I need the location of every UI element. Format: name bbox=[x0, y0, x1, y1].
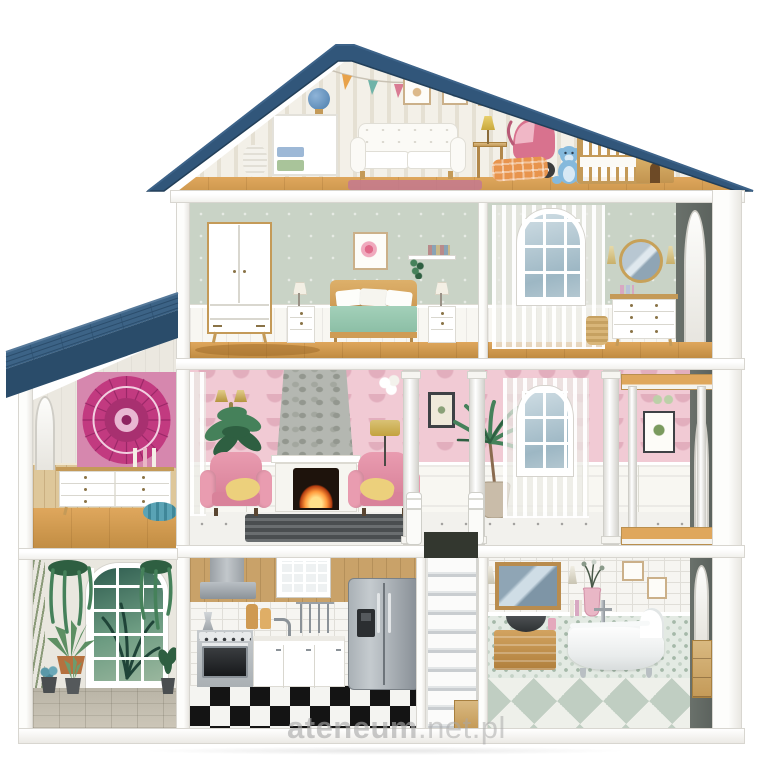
flower-picture bbox=[353, 232, 388, 270]
table-lamp bbox=[434, 282, 448, 308]
annex-floor-slab bbox=[18, 548, 178, 560]
kitchen-faucet bbox=[274, 618, 291, 636]
watermark-brand: ateneum bbox=[287, 710, 418, 745]
watermark-suffix: .net.pl bbox=[418, 710, 506, 745]
annex-left-wall bbox=[18, 360, 33, 728]
bathroom-mirror bbox=[495, 562, 561, 610]
annex-roof bbox=[0, 285, 200, 405]
elevator-sconce bbox=[652, 393, 674, 404]
kitchen-cabinets bbox=[253, 636, 345, 687]
bedroom bbox=[190, 203, 478, 358]
firebox bbox=[293, 468, 339, 510]
second-floor-slab bbox=[170, 358, 745, 370]
right-outer-wall bbox=[712, 190, 742, 730]
floor-lamp bbox=[369, 420, 401, 466]
clawfoot-bathtub bbox=[568, 608, 668, 682]
arched-doorway bbox=[694, 565, 709, 640]
candlesticks bbox=[131, 448, 159, 467]
elevator-platform bbox=[621, 527, 712, 545]
bathroom bbox=[488, 558, 712, 730]
attic-floor-slab bbox=[170, 190, 745, 203]
fire bbox=[297, 474, 335, 508]
elevator-shaft bbox=[621, 374, 712, 545]
bed bbox=[330, 280, 417, 342]
main-roof bbox=[130, 35, 760, 200]
conservatory-floor bbox=[33, 688, 176, 728]
hanging-utensils bbox=[296, 602, 334, 633]
teal-pouf bbox=[143, 502, 176, 521]
bathroom-picture bbox=[622, 561, 644, 581]
dressing-room bbox=[488, 203, 712, 358]
ice-dispenser bbox=[357, 609, 375, 637]
bedroom-divider-wall bbox=[478, 203, 488, 358]
stove-oven bbox=[197, 630, 253, 687]
small-drawer-unit bbox=[692, 640, 712, 698]
bathroom-floor bbox=[488, 678, 712, 730]
column bbox=[603, 370, 619, 545]
hanging-plant bbox=[409, 259, 425, 279]
living-room bbox=[190, 370, 712, 545]
white-orb-decor bbox=[377, 374, 403, 396]
elevator-post bbox=[628, 386, 637, 537]
potted-succulent bbox=[38, 666, 60, 694]
bedroom-rug bbox=[195, 344, 320, 356]
shelf-books bbox=[428, 245, 450, 255]
glass-cabinet bbox=[277, 558, 330, 597]
annex-conservatory bbox=[33, 560, 176, 728]
wardrobe bbox=[207, 222, 272, 343]
round-mirror bbox=[619, 239, 663, 283]
stone-chimney bbox=[277, 370, 353, 456]
stair-wall-right bbox=[478, 558, 488, 730]
cutting-boards bbox=[246, 604, 272, 629]
kitchen bbox=[190, 558, 420, 730]
perfume-bottles bbox=[620, 285, 634, 294]
stair-opening bbox=[424, 532, 478, 558]
laundry-basket bbox=[586, 316, 608, 345]
range-hood-canopy bbox=[200, 582, 256, 599]
potted-plant-small bbox=[158, 646, 176, 696]
nightstand bbox=[428, 306, 456, 343]
hanging-plant bbox=[135, 560, 176, 632]
soap-bottle bbox=[548, 618, 556, 630]
stair-wall-left bbox=[416, 558, 426, 730]
elevator-picture bbox=[643, 411, 675, 453]
bathroom-picture bbox=[647, 577, 667, 599]
pink-armchair bbox=[200, 452, 272, 516]
dollhouse-product-image: ateneum.net.pl bbox=[0, 0, 770, 770]
elevator-post bbox=[697, 386, 706, 537]
annex-side-window bbox=[35, 396, 55, 470]
ground-shadow bbox=[40, 746, 730, 758]
refrigerator bbox=[348, 578, 420, 690]
watermark: ateneum.net.pl bbox=[287, 710, 506, 746]
dresser bbox=[610, 294, 678, 346]
arched-window bbox=[517, 386, 573, 476]
table-lamp bbox=[292, 282, 306, 308]
arched-doorway bbox=[684, 210, 706, 342]
arched-window bbox=[517, 209, 585, 305]
potted-aloe bbox=[62, 656, 84, 694]
nightstand bbox=[287, 306, 315, 343]
living-room-rug bbox=[245, 514, 420, 542]
left-outer-wall bbox=[176, 203, 190, 730]
stair-newel-post bbox=[406, 492, 422, 545]
range-hood bbox=[210, 558, 244, 584]
floating-vanity bbox=[494, 630, 556, 670]
